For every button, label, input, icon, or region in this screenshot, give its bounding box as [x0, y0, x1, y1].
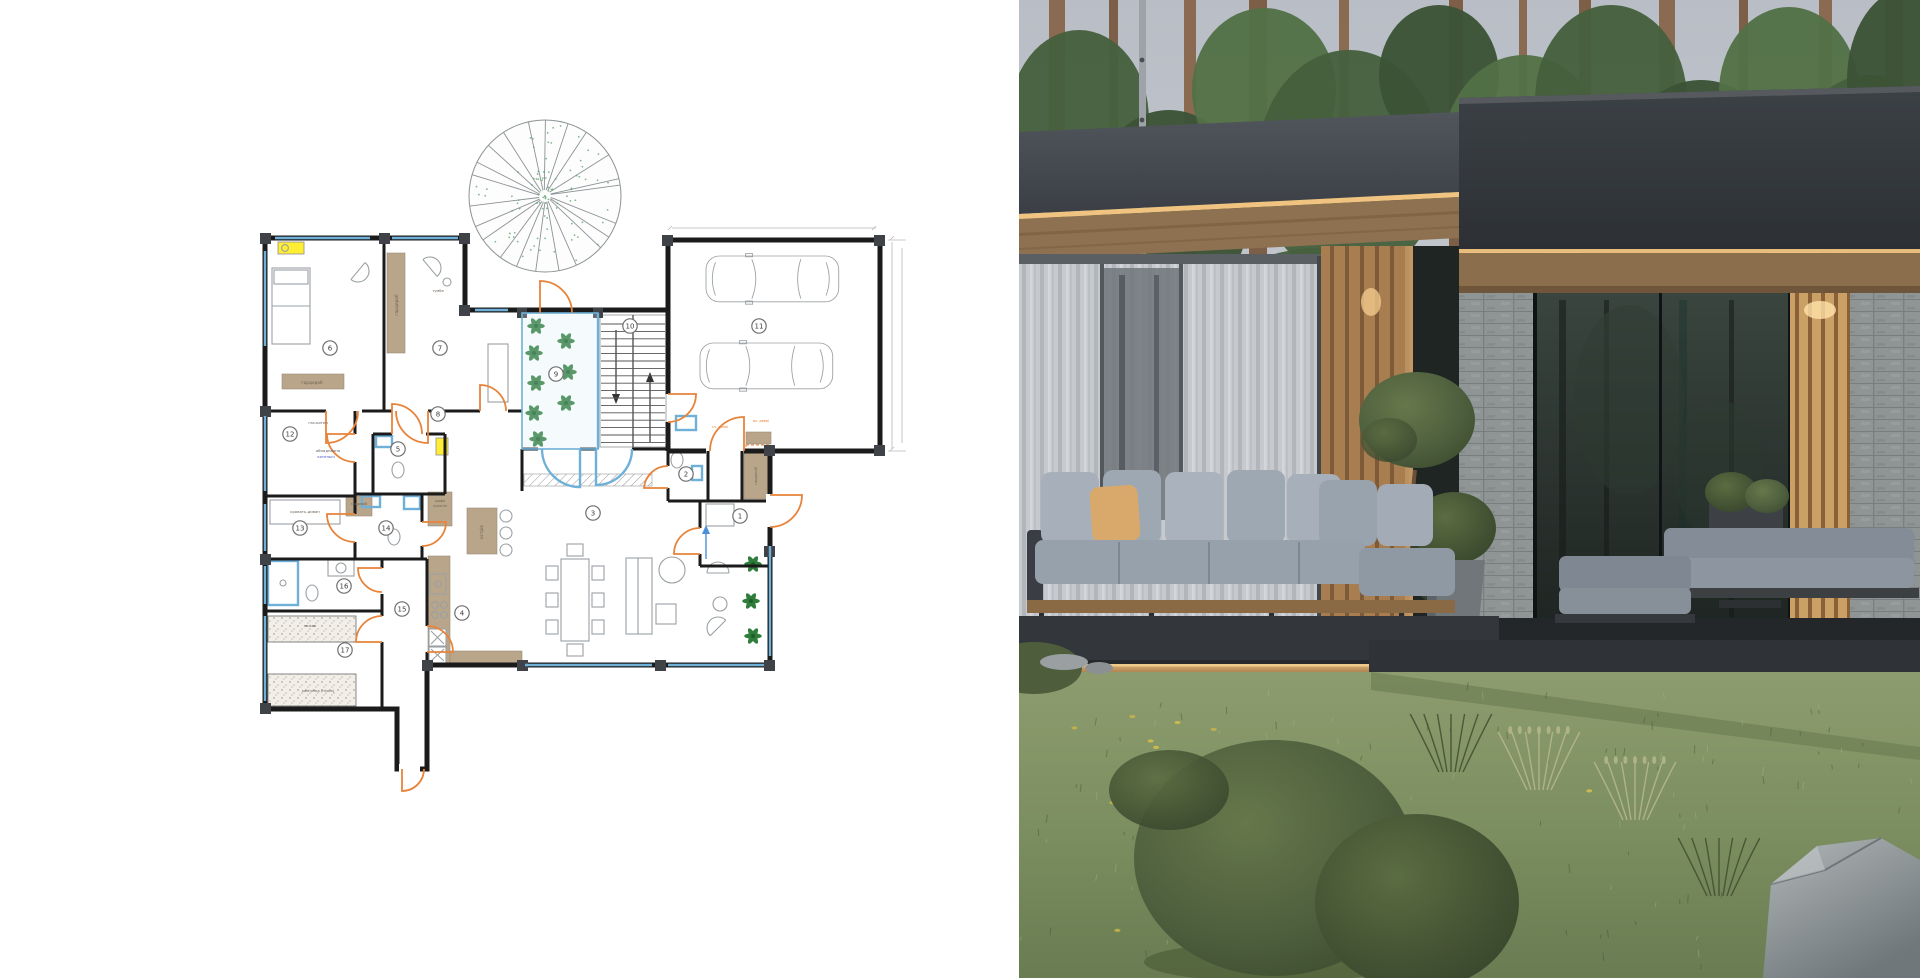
plan-label: острів	[479, 525, 485, 539]
plan-label: вх. двері	[753, 419, 770, 423]
svg-text:13: 13	[296, 525, 305, 533]
svg-text:11: 11	[755, 323, 764, 331]
back-cushion	[1041, 472, 1099, 544]
plan-label: гардероб	[394, 294, 400, 316]
room-number-marker: 9	[549, 367, 563, 381]
plan-label: газ-котел	[308, 420, 328, 425]
svg-text:10: 10	[626, 323, 635, 331]
tan-pillow	[1089, 484, 1141, 543]
stone-small	[1040, 654, 1088, 670]
room-number-marker: 15	[395, 602, 409, 616]
room-number-marker: 16	[337, 579, 351, 593]
portfolio-page: 1234567891011121314151617 гардеробгардер…	[0, 0, 1920, 978]
room-number-marker: 10	[623, 319, 637, 333]
room-number-marker: 7	[433, 341, 447, 355]
plan-label: лежак	[304, 623, 318, 628]
svg-text:17: 17	[341, 647, 350, 655]
room-number-marker: 1	[733, 509, 747, 523]
room-number-marker: 13	[293, 521, 307, 535]
svg-text:16: 16	[340, 583, 349, 591]
room-number-marker: 17	[338, 643, 352, 657]
svg-text:3: 3	[591, 510, 595, 518]
room-number-marker: 2	[679, 467, 693, 481]
svg-text:2: 2	[684, 471, 688, 479]
plan-label: кам'янка (пічка)	[302, 688, 335, 693]
side-table	[1719, 600, 1781, 608]
room-number-marker: 8	[431, 407, 445, 421]
room-number-marker: 4	[455, 606, 469, 620]
dimension-lines	[668, 226, 906, 451]
room-number-marker: 11	[752, 319, 766, 333]
plan-label: обладнання	[316, 448, 340, 453]
wall-sconce-glow	[1361, 288, 1381, 316]
plan-label: кровать-диван	[290, 509, 320, 514]
plan-label: тумба	[432, 289, 443, 293]
staircase	[600, 315, 666, 447]
svg-text:12: 12	[286, 431, 295, 439]
svg-text:14: 14	[382, 525, 391, 533]
plan-label: сл. двері	[712, 425, 729, 429]
svg-text:15: 15	[398, 606, 407, 614]
plan-label: шафи	[435, 499, 445, 503]
plan-label: гардероб	[754, 466, 758, 485]
svg-text:5: 5	[396, 446, 400, 454]
plan-label: котельні	[317, 454, 334, 459]
svg-text:7: 7	[438, 345, 442, 353]
svg-text:4: 4	[460, 610, 465, 618]
seat-cushions	[1035, 540, 1365, 584]
house-exterior-photo	[1019, 0, 1920, 978]
downlight-glow	[1804, 301, 1836, 319]
tree-symbol	[469, 120, 621, 272]
room-number-marker: 12	[283, 427, 297, 441]
svg-text:9: 9	[554, 371, 558, 379]
room-number-marker: 6	[323, 341, 337, 355]
floor-plan-drawing: 1234567891011121314151617 гардеробгардер…	[240, 96, 920, 796]
svg-text:1: 1	[738, 513, 742, 521]
room-number-marker: 3	[586, 506, 600, 520]
right-roof-fascia	[1459, 86, 1920, 252]
sofa-wood-base	[1027, 600, 1455, 613]
room-number-marker: 5	[391, 442, 405, 456]
led-strip-right	[1459, 249, 1920, 253]
room-number-marker: 14	[379, 521, 393, 535]
svg-text:6: 6	[328, 345, 333, 353]
bush-back	[1109, 750, 1229, 830]
svg-text:8: 8	[436, 411, 440, 419]
plan-label: кухонні	[433, 504, 447, 508]
plan-label: гардероб	[351, 502, 367, 506]
plan-label: гардероб	[301, 380, 323, 386]
